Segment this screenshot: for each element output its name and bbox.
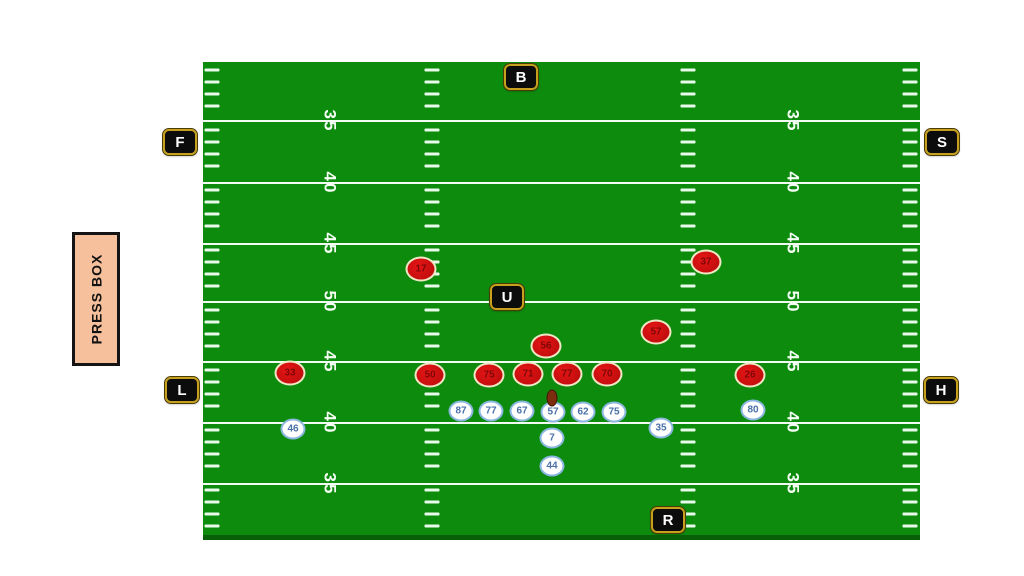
- hash-mark: [681, 429, 696, 432]
- football-icon: [547, 390, 558, 407]
- hash-mark: [903, 489, 918, 492]
- official-R: R: [651, 507, 685, 533]
- hash-mark: [681, 393, 696, 396]
- defense-player: 77: [552, 362, 583, 387]
- hash-mark: [903, 165, 918, 168]
- hash-mark: [903, 81, 918, 84]
- hash-mark: [681, 273, 696, 276]
- press-box: PRESS BOX: [72, 232, 120, 366]
- hash-mark: [903, 501, 918, 504]
- hash-mark: [681, 285, 696, 288]
- hash-mark: [205, 93, 220, 96]
- hash-mark: [425, 393, 440, 396]
- hash-mark: [205, 153, 220, 156]
- hash-mark: [425, 453, 440, 456]
- hash-mark: [425, 93, 440, 96]
- defense-player: 37: [691, 250, 722, 275]
- hash-mark: [425, 285, 440, 288]
- hash-mark: [681, 141, 696, 144]
- yard-line: [203, 422, 920, 424]
- hash-mark: [205, 105, 220, 108]
- hash-mark: [681, 405, 696, 408]
- hash-mark: [681, 129, 696, 132]
- yard-number: 50: [322, 291, 339, 314]
- hash-mark: [681, 153, 696, 156]
- defense-player: 70: [592, 362, 623, 387]
- hash-mark: [903, 189, 918, 192]
- hash-mark: [681, 213, 696, 216]
- offense-player: 44: [540, 456, 565, 477]
- hash-mark: [425, 309, 440, 312]
- offense-player: 80: [741, 400, 766, 421]
- hash-mark: [205, 69, 220, 72]
- hash-mark: [425, 105, 440, 108]
- defense-player: 56: [531, 334, 562, 359]
- hash-mark: [903, 381, 918, 384]
- hash-mark: [205, 429, 220, 432]
- hash-mark: [903, 153, 918, 156]
- hash-mark: [903, 429, 918, 432]
- hash-mark: [205, 285, 220, 288]
- hash-mark: [425, 69, 440, 72]
- hash-mark: [425, 441, 440, 444]
- hash-mark: [205, 465, 220, 468]
- hash-mark: [681, 453, 696, 456]
- hash-mark: [903, 465, 918, 468]
- hash-mark: [205, 513, 220, 516]
- hash-mark: [903, 513, 918, 516]
- official-H: H: [924, 377, 958, 403]
- hash-mark: [681, 369, 696, 372]
- hash-mark: [903, 393, 918, 396]
- official-L: L: [165, 377, 199, 403]
- officiating-diagram: PRESS BOX 3535404045455050454540403535 B…: [0, 0, 1024, 576]
- hash-mark: [903, 141, 918, 144]
- hash-mark: [903, 453, 918, 456]
- hash-mark: [681, 465, 696, 468]
- hash-mark: [425, 153, 440, 156]
- hash-mark: [205, 225, 220, 228]
- yard-number: 45: [322, 351, 339, 374]
- hash-mark: [205, 525, 220, 528]
- hash-mark: [205, 441, 220, 444]
- hash-mark: [681, 189, 696, 192]
- hash-mark: [425, 333, 440, 336]
- hash-mark: [205, 141, 220, 144]
- hash-mark: [425, 213, 440, 216]
- hash-mark: [903, 225, 918, 228]
- hash-mark: [903, 249, 918, 252]
- hash-mark: [681, 69, 696, 72]
- yard-line: [203, 483, 920, 485]
- official-F: F: [163, 129, 197, 155]
- hash-mark: [903, 405, 918, 408]
- hash-mark: [903, 273, 918, 276]
- hash-mark: [681, 321, 696, 324]
- defense-player: 50: [415, 363, 446, 388]
- hash-mark: [205, 405, 220, 408]
- hash-mark: [681, 333, 696, 336]
- offense-player: 77: [479, 401, 504, 422]
- hash-mark: [903, 105, 918, 108]
- hash-mark: [903, 261, 918, 264]
- yard-number: 45: [785, 233, 802, 256]
- hash-mark: [205, 213, 220, 216]
- hash-mark: [425, 513, 440, 516]
- hash-mark: [205, 249, 220, 252]
- defense-player: 17: [406, 257, 437, 282]
- hash-mark: [205, 309, 220, 312]
- hash-mark: [903, 333, 918, 336]
- yard-number: 35: [785, 473, 802, 496]
- defense-player: 57: [641, 320, 672, 345]
- yard-number: 35: [322, 110, 339, 133]
- yard-line: [203, 120, 920, 122]
- hash-mark: [903, 285, 918, 288]
- hash-mark: [425, 525, 440, 528]
- hash-mark: [425, 225, 440, 228]
- offense-player: 7: [540, 428, 565, 449]
- official-S: S: [925, 129, 959, 155]
- hash-mark: [205, 369, 220, 372]
- hash-mark: [205, 129, 220, 132]
- hash-mark: [425, 429, 440, 432]
- hash-mark: [425, 345, 440, 348]
- yard-line: [203, 243, 920, 245]
- offense-player: 87: [449, 401, 474, 422]
- hash-mark: [425, 189, 440, 192]
- hash-mark: [205, 381, 220, 384]
- hash-mark: [681, 93, 696, 96]
- yard-number: 35: [322, 473, 339, 496]
- hash-mark: [425, 129, 440, 132]
- hash-mark: [205, 345, 220, 348]
- hash-mark: [205, 393, 220, 396]
- hash-mark: [425, 489, 440, 492]
- hash-mark: [205, 453, 220, 456]
- offense-player: 67: [510, 401, 535, 422]
- hash-mark: [681, 249, 696, 252]
- hash-mark: [681, 165, 696, 168]
- yard-line: [203, 301, 920, 303]
- hash-mark: [681, 105, 696, 108]
- offense-player: 62: [571, 402, 596, 423]
- hash-mark: [903, 129, 918, 132]
- yard-number: 40: [322, 172, 339, 195]
- hash-mark: [903, 201, 918, 204]
- hash-mark: [205, 333, 220, 336]
- hash-mark: [681, 381, 696, 384]
- hash-mark: [425, 201, 440, 204]
- hash-mark: [205, 189, 220, 192]
- hash-mark: [425, 141, 440, 144]
- offense-player: 35: [649, 418, 674, 439]
- hash-mark: [903, 69, 918, 72]
- hash-mark: [205, 489, 220, 492]
- hash-mark: [681, 501, 696, 504]
- yard-line: [203, 182, 920, 184]
- hash-mark: [681, 489, 696, 492]
- yard-number: 40: [785, 172, 802, 195]
- official-B: B: [504, 64, 538, 90]
- press-box-label: PRESS BOX: [88, 254, 104, 345]
- hash-mark: [205, 501, 220, 504]
- hash-mark: [205, 321, 220, 324]
- hash-mark: [903, 525, 918, 528]
- yard-number: 50: [785, 291, 802, 314]
- official-U: U: [490, 284, 524, 310]
- defense-player: 26: [735, 363, 766, 388]
- defense-player: 75: [474, 363, 505, 388]
- offense-player: 46: [281, 419, 306, 440]
- hash-mark: [681, 345, 696, 348]
- hash-mark: [205, 81, 220, 84]
- offense-player: 75: [602, 402, 627, 423]
- hash-mark: [903, 345, 918, 348]
- hash-mark: [681, 441, 696, 444]
- hash-mark: [681, 309, 696, 312]
- hash-mark: [205, 201, 220, 204]
- hash-mark: [903, 213, 918, 216]
- hash-mark: [903, 321, 918, 324]
- yard-number: 40: [785, 412, 802, 435]
- hash-mark: [425, 321, 440, 324]
- yard-number: 35: [785, 110, 802, 133]
- hash-mark: [681, 225, 696, 228]
- hash-mark: [205, 261, 220, 264]
- hash-mark: [425, 501, 440, 504]
- hash-mark: [425, 465, 440, 468]
- hash-mark: [425, 81, 440, 84]
- hash-mark: [425, 249, 440, 252]
- hash-mark: [903, 309, 918, 312]
- hash-mark: [681, 81, 696, 84]
- yard-number: 45: [322, 233, 339, 256]
- hash-mark: [425, 405, 440, 408]
- yard-number: 40: [322, 412, 339, 435]
- hash-mark: [681, 201, 696, 204]
- defense-player: 71: [513, 362, 544, 387]
- hash-mark: [903, 93, 918, 96]
- yard-number: 45: [785, 351, 802, 374]
- hash-mark: [903, 441, 918, 444]
- defense-player: 33: [275, 361, 306, 386]
- hash-mark: [205, 165, 220, 168]
- hash-mark: [903, 369, 918, 372]
- hash-mark: [205, 273, 220, 276]
- hash-mark: [425, 165, 440, 168]
